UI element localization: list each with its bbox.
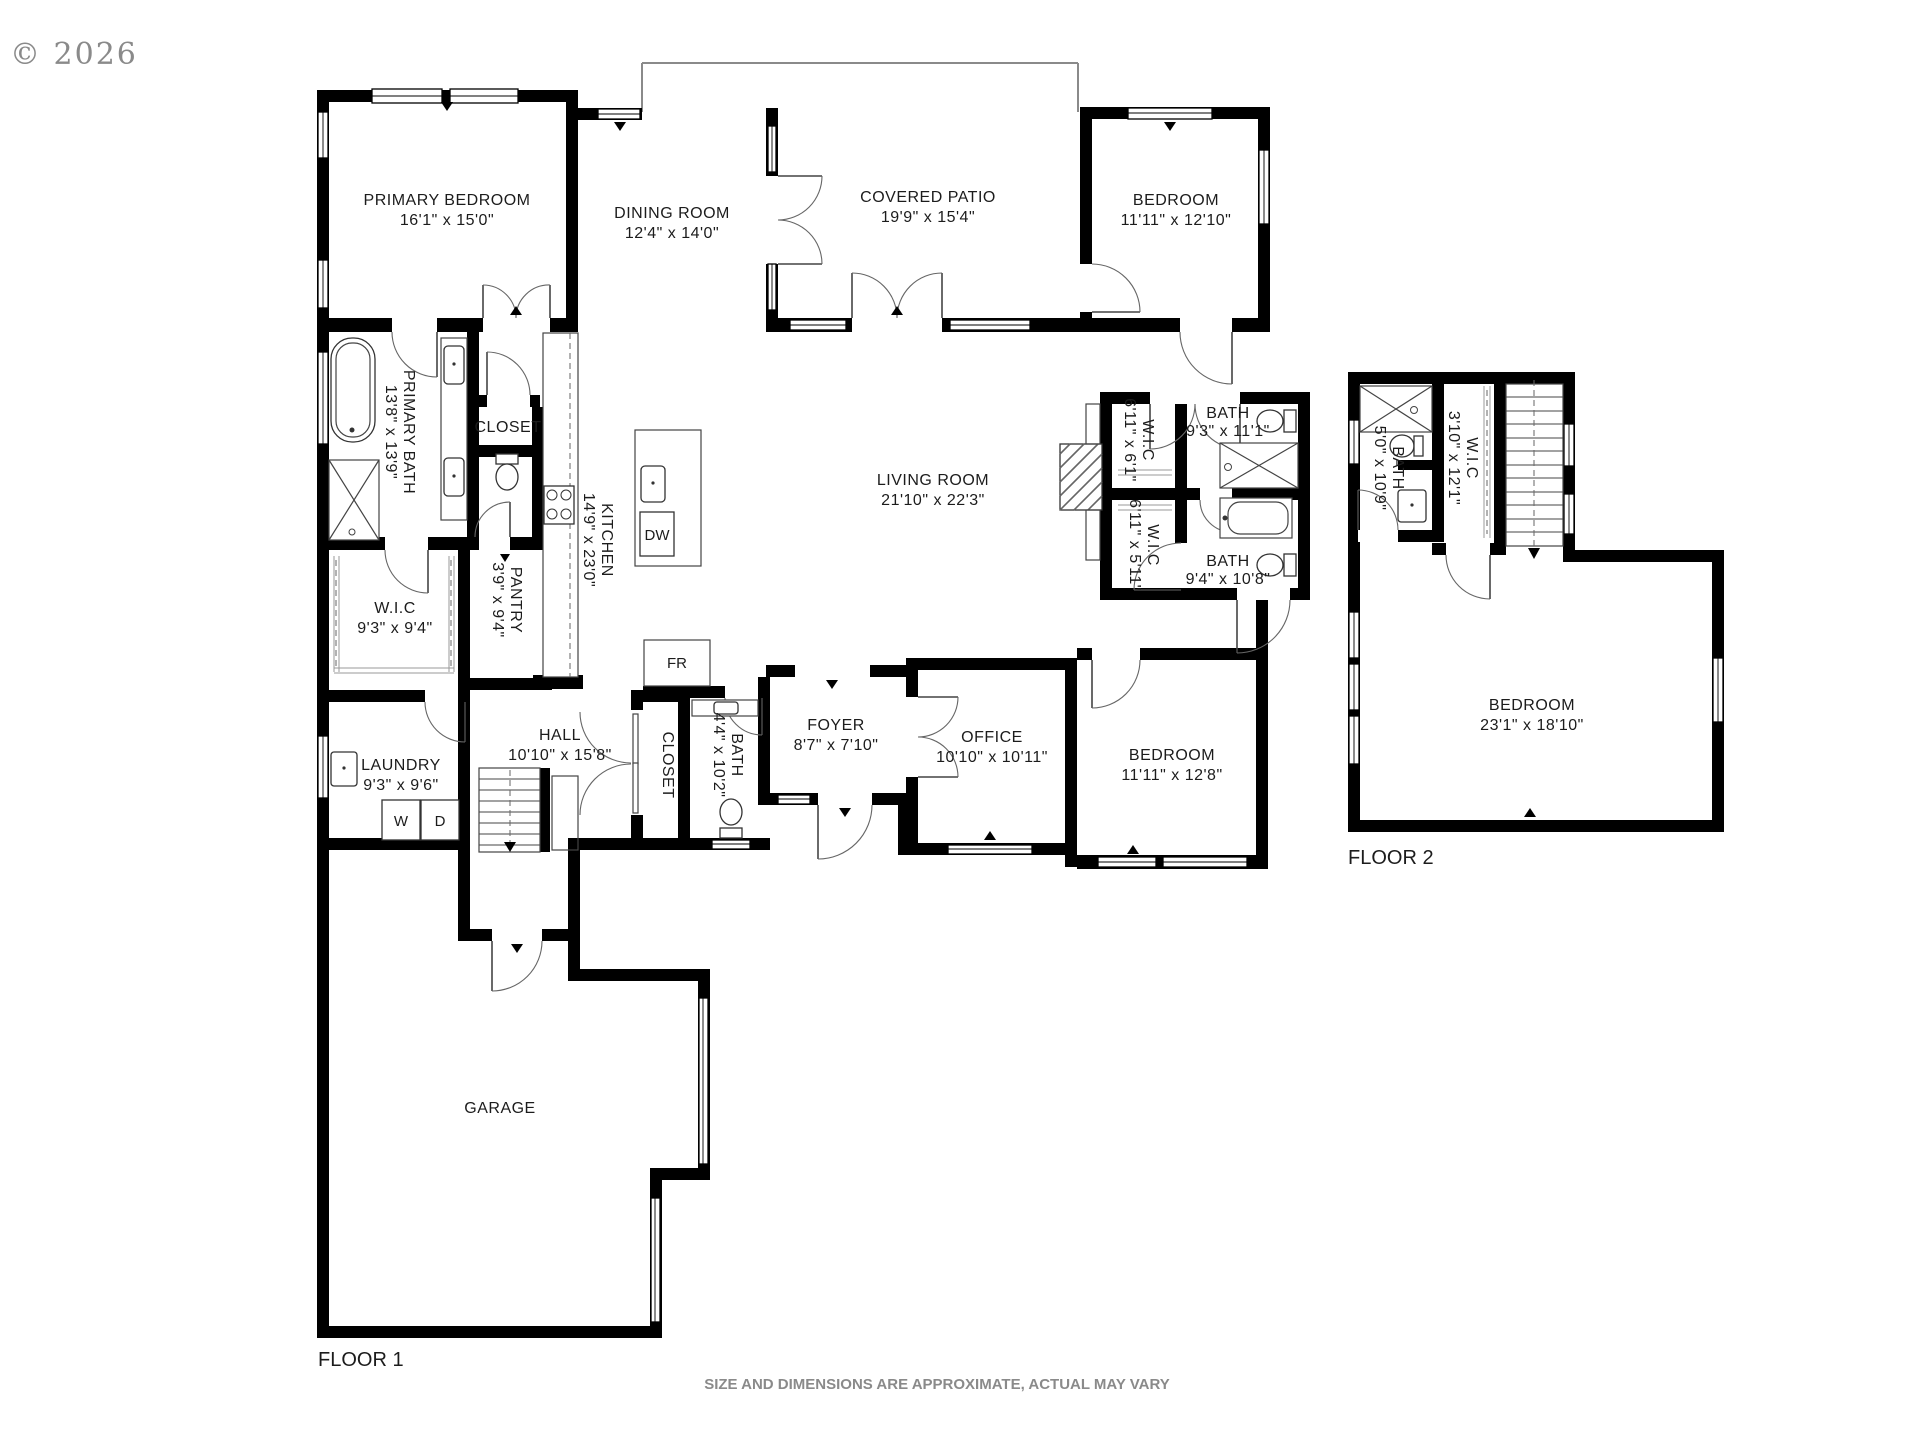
room-pantry: PANTRY 3'9" x 9'4" [489,562,524,637]
laundry-sink-icon [331,752,357,786]
svg-text:5'0" x 10'9": 5'0" x 10'9" [1371,426,1388,511]
svg-text:8'7" x 7'10": 8'7" x 7'10" [794,737,879,754]
room-hall-closet: CLOSET [659,731,676,798]
svg-text:W.I.C: W.I.C [374,600,416,617]
svg-text:KITCHEN: KITCHEN [598,503,615,577]
floor-plan-svg: PRIMARY BEDROOM 16'1" x 15'0" DINING ROO… [0,0,1920,1440]
svg-text:10'10" x 10'11": 10'10" x 10'11" [936,749,1048,766]
disclaimer-text: SIZE AND DIMENSIONS ARE APPROXIMATE, ACT… [704,1376,1170,1393]
svg-text:BATH: BATH [728,733,745,776]
svg-text:10'10" x 15'8": 10'10" x 15'8" [508,747,612,764]
svg-text:BATH: BATH [1389,446,1406,489]
svg-text:3'10" x 12'1": 3'10" x 12'1" [1445,411,1462,505]
room-kitchen: KITCHEN 14'9" x 23'0" [580,493,615,587]
dishwasher-label: DW [645,527,671,544]
washer-label: W [394,813,409,830]
svg-text:11'11" x 12'10": 11'11" x 12'10" [1121,212,1232,229]
floor2-title: FLOOR 2 [1348,847,1434,869]
svg-text:W.I.C: W.I.C [1144,524,1161,566]
svg-text:CLOSET: CLOSET [474,419,541,436]
svg-text:14'9" x 23'0": 14'9" x 23'0" [580,493,597,587]
svg-text:6'11" x 6'1": 6'11" x 6'1" [1121,398,1138,482]
svg-text:BATH: BATH [1206,405,1249,422]
shower-icon-primary [329,460,379,540]
bathtub-icon [331,338,375,442]
svg-text:PANTRY: PANTRY [507,567,524,633]
room-label: PRIMARY BEDROOM [364,192,531,209]
svg-text:FOYER: FOYER [807,717,865,734]
svg-text:CLOSET: CLOSET [659,731,676,798]
svg-text:21'10" x 22'3": 21'10" x 22'3" [881,492,985,509]
svg-text:23'1" x 18'10": 23'1" x 18'10" [1480,717,1584,734]
svg-text:BEDROOM: BEDROOM [1129,747,1215,764]
floor-plan-page: PRIMARY BEDROOM 16'1" x 15'0" DINING ROO… [0,0,1920,1440]
svg-text:9'4" x 10'8": 9'4" x 10'8" [1186,571,1271,588]
svg-text:W.I.C: W.I.C [1139,419,1156,461]
dryer-label: D [435,813,446,830]
svg-text:19'9" x 15'4": 19'9" x 15'4" [881,209,975,226]
copyright-watermark: © 2026 [10,37,138,72]
room-dims: 16'1" x 15'0" [400,212,494,229]
kitchen-island [635,430,701,566]
toilet-icon-primary [496,454,518,490]
svg-text:11'11" x 12'8": 11'11" x 12'8" [1121,767,1222,784]
fridge-label: FR [667,655,687,672]
svg-text:COVERED PATIO: COVERED PATIO [860,189,996,206]
svg-text:12'4" x 14'0": 12'4" x 14'0" [625,225,719,242]
svg-text:13'8" x 13'9": 13'8" x 13'9" [382,385,399,479]
svg-text:LAUNDRY: LAUNDRY [361,757,441,774]
svg-text:3'9" x 9'4": 3'9" x 9'4" [489,562,506,637]
svg-text:9'3" x 11'1": 9'3" x 11'1" [1186,423,1270,440]
svg-text:BATH: BATH [1206,553,1249,570]
svg-text:DINING ROOM: DINING ROOM [614,205,730,222]
svg-text:GARAGE: GARAGE [464,1100,535,1117]
svg-text:9'3" x 9'4": 9'3" x 9'4" [357,620,432,637]
room-garage: GARAGE [464,1100,535,1117]
svg-text:4'4" x 10'2": 4'4" x 10'2" [710,713,727,798]
stove-icon [544,486,574,524]
svg-text:HALL: HALL [539,727,581,744]
svg-text:OFFICE: OFFICE [961,729,1023,746]
room-primary-bath: PRIMARY BATH 13'8" x 13'9" [382,370,417,494]
svg-text:6'11" x 5'11": 6'11" x 5'11" [1126,499,1143,591]
floor1-title: FLOOR 1 [318,1349,404,1371]
svg-text:9'3" x 9'6": 9'3" x 9'6" [363,777,438,794]
svg-text:BEDROOM: BEDROOM [1489,697,1575,714]
svg-text:LIVING ROOM: LIVING ROOM [877,472,989,489]
svg-text:BEDROOM: BEDROOM [1133,192,1219,209]
svg-text:PRIMARY BATH: PRIMARY BATH [400,370,417,494]
vanity-sinks-primary [441,338,467,520]
room-primary-closet: CLOSET [474,419,541,436]
svg-text:W.I.C: W.I.C [1463,437,1480,479]
